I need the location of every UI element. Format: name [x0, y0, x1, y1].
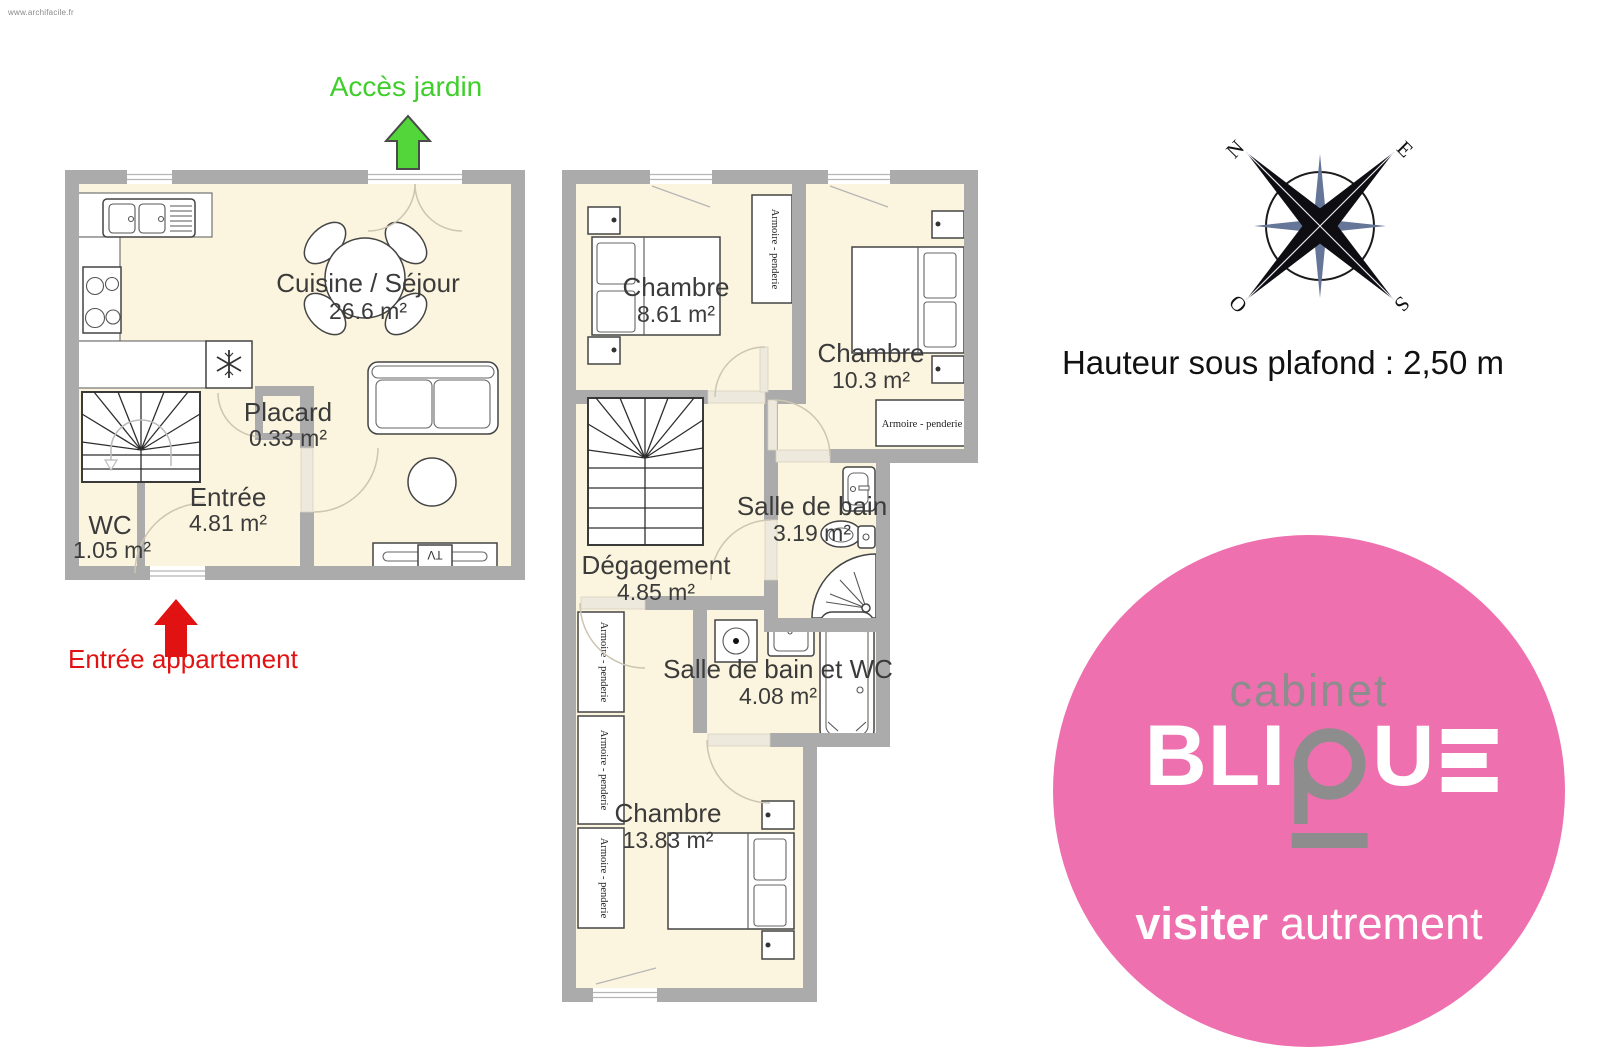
ceiling-height-text: Hauteur sous plafond : 2,50 m	[1048, 344, 1518, 382]
garden-access-label: Accès jardin	[330, 71, 483, 102]
kitchen-sink	[103, 199, 195, 237]
compass-north-label: N	[1221, 135, 1249, 163]
room-label-entree: Entrée	[190, 482, 267, 512]
sofa	[368, 362, 498, 434]
room-area-salle-de-bain: 3.19 m²	[773, 520, 851, 546]
garden-access-arrow-icon	[386, 116, 430, 169]
logo-word-u: U	[1372, 713, 1435, 799]
garden-access-annotation: Accès jardin	[330, 71, 483, 169]
logo-tagline-light: autrement	[1280, 898, 1483, 949]
logo-word-bli: BLI	[1145, 713, 1287, 799]
room-area-entree: 4.81 m²	[189, 510, 267, 536]
apartment-entrance-label: Entrée appartement	[68, 644, 299, 674]
room-label-chambre2: Chambre	[818, 338, 925, 368]
room-area-chambre3: 13.83 m²	[623, 827, 714, 853]
room-label-cuisine-sejour: Cuisine / Séjour	[276, 268, 460, 298]
stairs-ground	[82, 392, 200, 482]
room-label-degagement: Dégagement	[582, 550, 732, 580]
room-area-wc: 1.05 m²	[73, 537, 151, 563]
fridge	[206, 341, 252, 388]
floor-plan-ground: TV	[65, 170, 525, 580]
logo-tagline: visiterautrement	[1053, 898, 1565, 950]
logo-q-icon	[1288, 721, 1370, 853]
room-area-degagement: 4.85 m²	[617, 579, 695, 605]
room-area-chambre2: 10.3 m²	[832, 367, 910, 393]
compass-east-label: E	[1392, 136, 1418, 162]
agency-logo-badge: cabinet BLI U visiterautrement	[1053, 535, 1565, 1047]
compass-rose-icon: N E O S	[1220, 126, 1420, 326]
logo-brand-word: BLI U	[1145, 713, 1498, 853]
tv-label: TV	[427, 548, 442, 562]
compass-west-label: O	[1224, 290, 1252, 318]
wardrobe: Armoire - penderie Armoire - penderie Ar…	[578, 612, 624, 928]
stairs-upper	[588, 398, 703, 545]
room-label-salle-de-bain-wc: Salle de bain et WC	[663, 654, 893, 684]
room-label-placard: Placard	[244, 397, 332, 427]
room-area-placard: 0.33 m²	[249, 425, 327, 451]
stove	[83, 267, 121, 333]
room-label-chambre3: Chambre	[615, 798, 722, 828]
logo-tagline-bold: visiter	[1135, 898, 1268, 949]
tv-stand: TV	[373, 543, 497, 570]
wardrobe: Armoire - penderie	[876, 400, 968, 446]
wardrobe-label: Armoire - penderie	[769, 209, 780, 290]
floorplan-page: www.archifacile.fr	[0, 0, 1600, 1064]
logo-cabinet-text: cabinet	[1053, 665, 1565, 717]
room-label-wc: WC	[88, 510, 131, 540]
compass-south-label: S	[1390, 292, 1415, 317]
logo-e-icon	[1441, 729, 1497, 792]
room-area-cuisine-sejour: 26.6 m²	[329, 298, 407, 324]
side-table	[408, 458, 456, 506]
floor-plan-upper: Armoire - penderie Armoire - penderie	[562, 170, 978, 1002]
room-label-chambre1: Chambre	[623, 272, 730, 302]
wardrobe-label: Armoire - penderie	[598, 730, 609, 811]
room-label-salle-de-bain: Salle de bain	[737, 491, 887, 521]
apartment-entrance-annotation: Entrée appartement	[68, 599, 299, 674]
room-area-chambre1: 8.61 m²	[637, 301, 715, 327]
wardrobe-label: Armoire - penderie	[598, 622, 609, 703]
room-area-salle-de-bain-wc: 4.08 m²	[739, 683, 817, 709]
wardrobe-label: Armoire - penderie	[598, 838, 609, 919]
wardrobe-label: Armoire - penderie	[882, 419, 963, 430]
wardrobe: Armoire - penderie	[752, 195, 792, 303]
